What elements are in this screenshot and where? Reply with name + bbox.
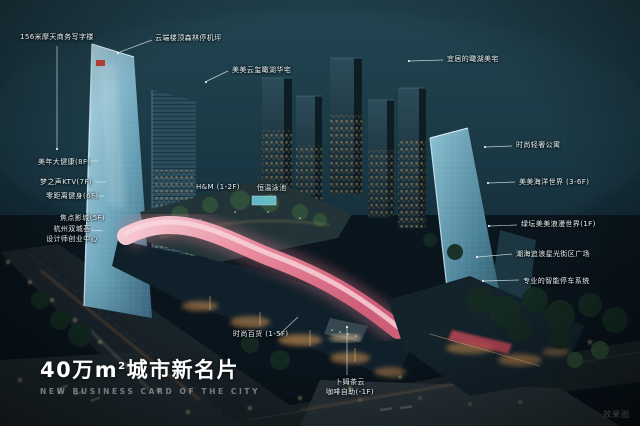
annotation-helipad: 云端楼顶森林停机坪: [155, 33, 222, 43]
headline-block: 40万m2城市新名片 NEW BUSINESS CARD OF THE CITY: [40, 354, 260, 396]
annotation-lakeview-east: 宜居的瞰湖美宅: [447, 54, 499, 64]
annotation-ktv: 梦之声KTV(7F): [40, 177, 92, 187]
headline-title: 40万m2城市新名片: [40, 354, 260, 384]
annotation-pool: 恒温泳池: [257, 183, 287, 193]
annotation-lakeview-west: 美美云玺瞰湖华宅: [232, 65, 291, 75]
annotation-romantic-street: 绿坛美美浪漫世界(1F): [521, 219, 596, 229]
headline-superscript: 2: [118, 361, 126, 372]
annotation-designer-center: 杭州双城荟 设计师创业中心: [44, 224, 100, 244]
watermark-text: 效果图: [603, 409, 630, 420]
annotation-gym: 零距离健身(6F): [46, 191, 99, 201]
annotation-office-tower: 156米摩天商务写字楼: [20, 32, 94, 42]
annotation-hm-store: H&M (1-2F): [196, 182, 240, 192]
headline-prefix: 40万m: [40, 358, 118, 382]
annotation-cafe: 卜姆茶云 咖啡自助(-1F): [324, 377, 376, 397]
headline-subtitle: NEW BUSINESS CARD OF THE CITY: [40, 387, 260, 396]
rendering-canvas: 156米摩天商务写字楼 云端楼顶森林停机坪 美美云玺瞰湖华宅 美年大健康(8F)…: [0, 0, 640, 426]
annotation-apartment: 时尚轻奢公寓: [516, 140, 560, 150]
annotation-parking: 专业的智能停车系统: [523, 276, 590, 286]
headline-suffix: 城市新名片: [127, 358, 240, 382]
annotation-department-store: 时尚百货 (1-5F): [233, 329, 289, 339]
annotation-ocean-world: 美美海洋世界 (3-6F): [519, 177, 589, 187]
annotation-plaza: 潮海追浪星光街区广场: [516, 249, 590, 259]
annotation-cinema: 焦点影城(5F): [60, 213, 105, 223]
annotation-health-center: 美年大健康(8F): [38, 157, 91, 167]
